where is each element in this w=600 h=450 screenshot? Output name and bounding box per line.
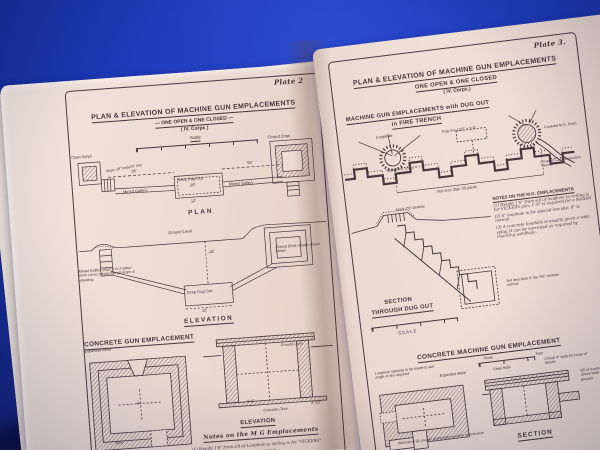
photo-vignette bbox=[0, 0, 600, 450]
book-photo: Plate 2 PLAN & ELEVATION OF MACHINE GUN … bbox=[0, 0, 600, 450]
